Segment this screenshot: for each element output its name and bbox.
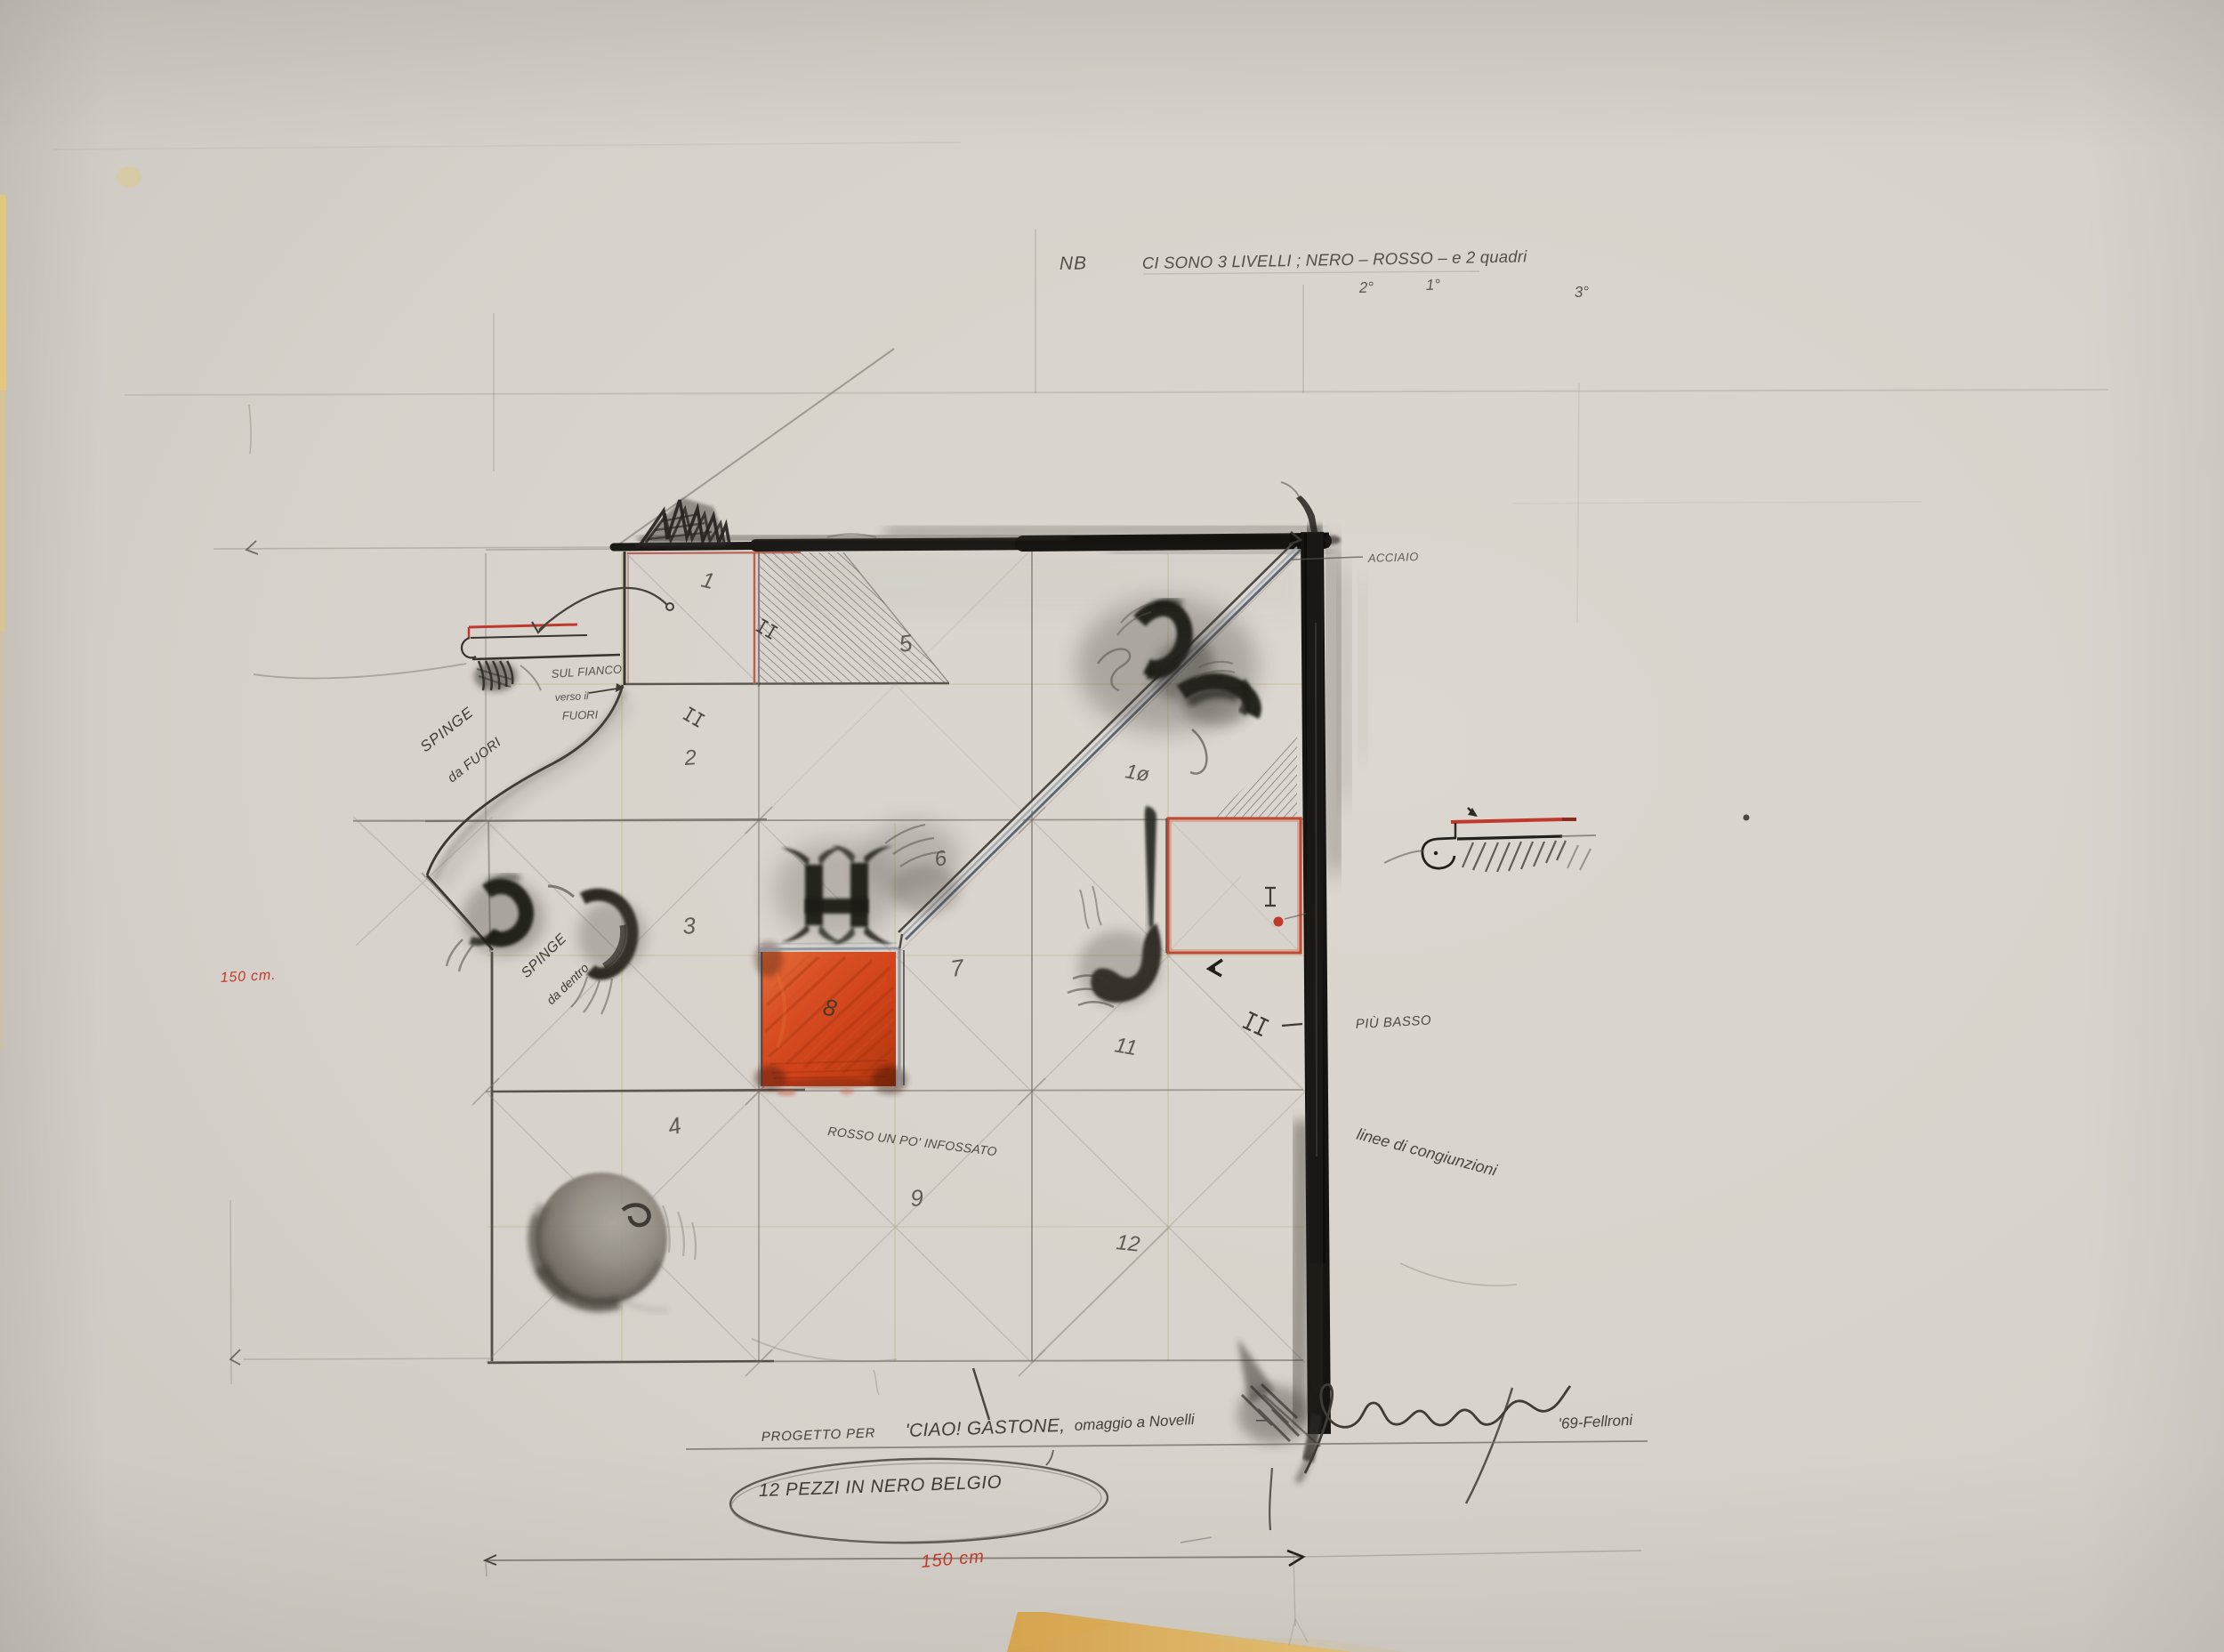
svg-text:FUORI: FUORI [562,708,599,722]
svg-text:3: 3 [681,912,697,939]
svg-text:1°: 1° [1425,276,1440,294]
svg-text:11: 11 [1113,1033,1139,1060]
svg-text:ACCIAIO: ACCIAIO [1367,550,1419,565]
svg-text:12: 12 [1115,1230,1140,1257]
svg-text:1ø: 1ø [1124,759,1151,786]
svg-text:9: 9 [909,1184,924,1212]
svg-text:2°: 2° [1358,278,1374,296]
svg-text:3°: 3° [1574,283,1589,301]
svg-text:–: – [1255,1410,1267,1430]
svg-text:NB: NB [1060,253,1088,274]
svg-text:150 cm.: 150 cm. [220,968,276,986]
svg-text:2: 2 [683,745,697,770]
svg-text:verso il: verso il [554,689,589,704]
